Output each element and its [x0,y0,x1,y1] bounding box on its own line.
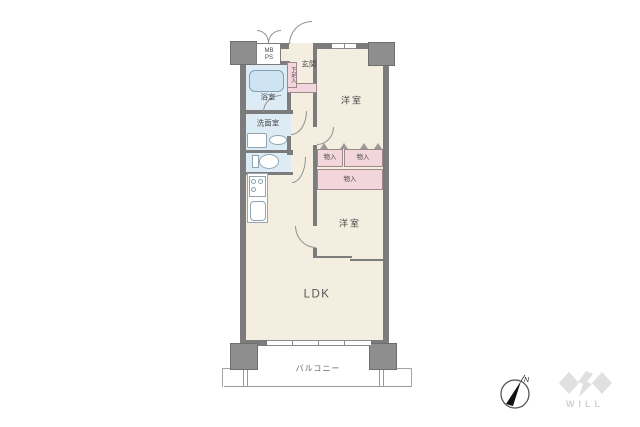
washer-icon [247,133,267,148]
window-bottom-tick-2 [318,340,319,346]
balcony-divider-left-2 [247,370,248,387]
genkan-label: 玄関 [302,60,317,68]
balcony-divider-right-2 [383,370,384,387]
balcony-divider-left [243,370,244,387]
wall-corridor-left-c [287,152,293,155]
pillar-bottom-right [369,343,397,370]
wall-top-4 [356,43,368,49]
pillar-top-right [368,42,395,66]
partition-slider-2 [350,259,383,261]
closet-door-mark-2 [340,143,348,149]
pillar-bottom-left [230,343,258,370]
washbasin-icon [269,135,287,145]
closet-door-mark-4 [374,143,382,149]
wall-right [383,43,389,346]
meter-box-label-mb: MB [265,48,274,55]
washroom-label: 洗面室 [257,119,280,127]
meter-box-label-ps: PS [265,55,274,62]
window-bottom [267,340,371,346]
meter-box: MB PS [256,43,281,65]
toilet-tank-icon [252,155,259,168]
closet-3-label: 物入 [344,177,357,184]
closet-2-label: 物入 [357,155,370,162]
will-logo-text: WILL [566,399,604,409]
logo-diamond-right [592,372,612,394]
closet-door-mark-3 [360,143,368,149]
meter-door-arc-right [268,30,281,43]
stove-burner-2 [258,179,263,184]
balcony-label: バルコニー [296,365,341,373]
western-room-1-label: 洋室 [341,97,363,106]
entrance-door-arc [289,21,312,44]
wall-wash-toilet [246,150,293,153]
will-logo: WILL [552,366,632,416]
compass-icon: N [498,372,536,414]
partition-slider-1 [316,256,352,258]
wall-left [240,43,246,346]
closet-door-mark-1 [320,143,328,149]
toilet-bowl-icon [259,154,279,169]
compass-needle [506,381,521,406]
compass-north-label: N [524,377,530,384]
meter-box-label: MB PS [265,48,274,62]
ldk-label: LDK [304,289,331,301]
bathtub-icon [249,70,284,92]
pillar-top-left [230,41,257,65]
stove-burner-1 [251,179,256,184]
balcony-divider-right [379,370,380,387]
logo-diamond-left [559,372,579,394]
floorplan-canvas: MB PS 下足入 玄関 浴室 洗面室 洋室 物入 物入 物入 洋室 LDK バ… [0,0,640,427]
wall-top-2 [281,43,289,49]
bathroom-label: 浴室 [261,93,276,101]
balcony-rail-right [397,368,412,369]
window-top-tick [344,43,345,49]
kitchen-sink-icon [250,201,266,221]
logo-bolt [578,371,593,397]
western-room-2-label: 洋室 [339,220,361,229]
balcony-rail-right-end [411,368,412,387]
shoe-cabinet-label: 下足入 [289,67,295,84]
window-bottom-tick-3 [344,340,345,346]
stove-burner-3 [251,187,256,192]
balcony-rail-left-end [222,368,223,387]
closet-1-label: 物入 [324,155,337,162]
window-bottom-tick-1 [292,340,293,346]
wall-corridor-left-b [287,136,291,152]
